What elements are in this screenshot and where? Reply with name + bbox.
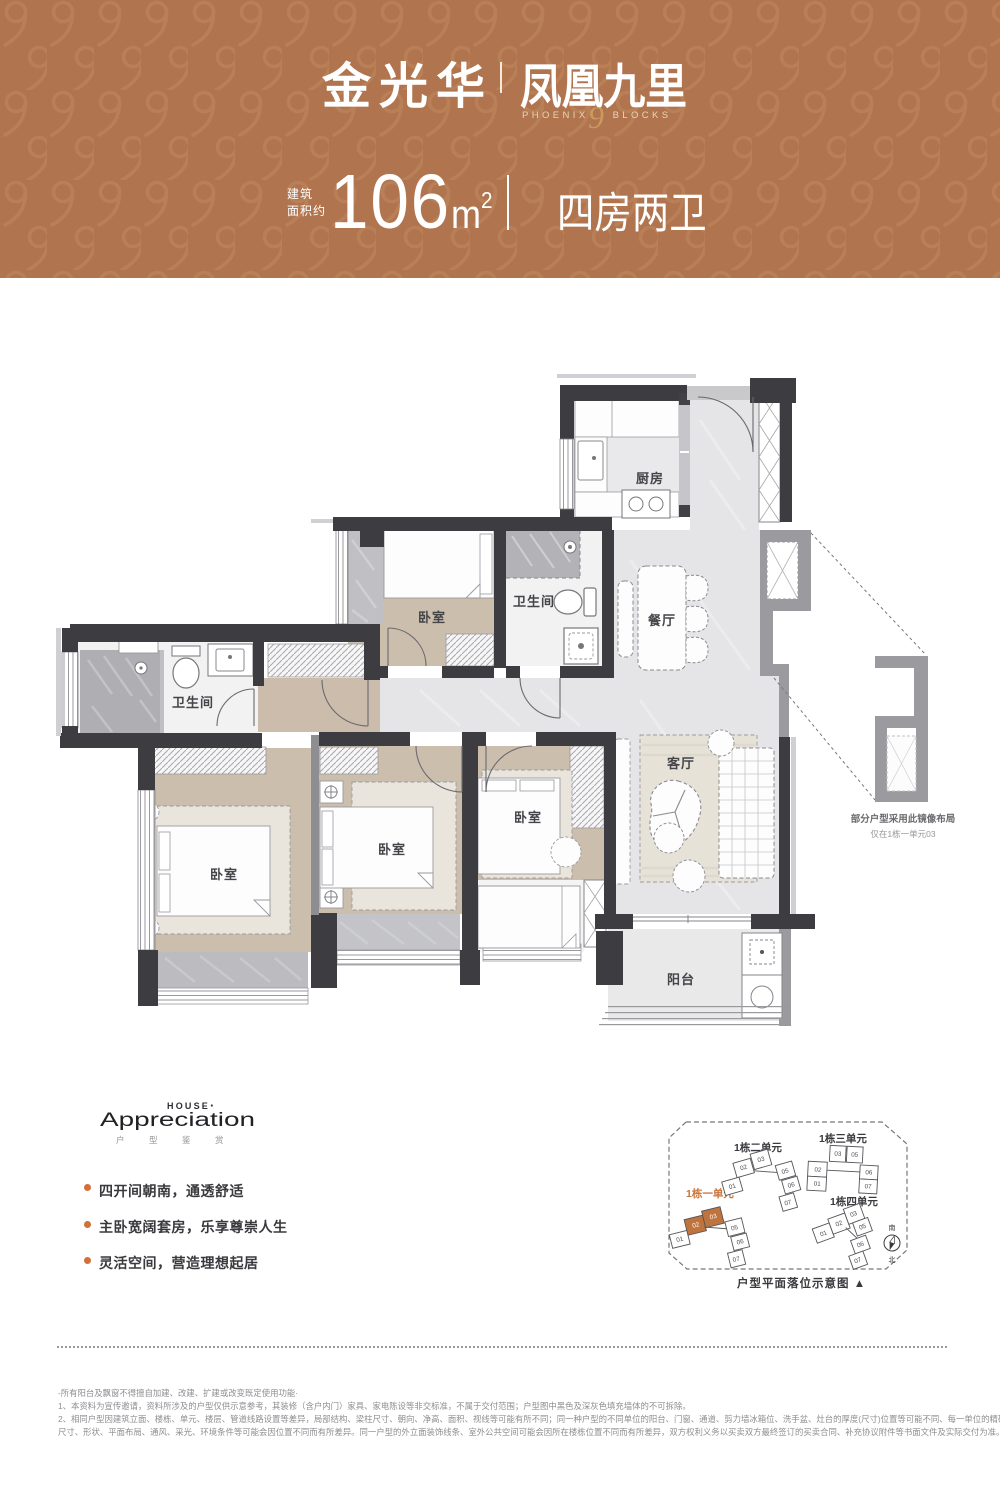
svg-text:餐厅: 餐厅 [647,613,676,628]
svg-text:卧室: 卧室 [378,842,406,857]
svg-text:部分户型采用此镜像布局: 部分户型采用此镜像布局 [851,813,956,825]
svg-text:07: 07 [864,1183,872,1190]
svg-text:南: 南 [889,1223,896,1232]
svg-text:客厅: 客厅 [667,756,695,771]
svg-text:卫生间: 卫生间 [172,695,214,710]
svg-text:仅在1栋一单元03: 仅在1栋一单元03 [870,829,935,839]
svg-text:Appreciation: Appreciation [100,1110,255,1131]
svg-text:03: 03 [834,1151,842,1158]
svg-text:卫生间: 卫生间 [513,594,555,609]
svg-text:06: 06 [865,1169,873,1176]
svg-text:卧室: 卧室 [514,810,542,825]
svg-text:02: 02 [814,1167,822,1174]
svg-text:北: 北 [889,1256,896,1264]
svg-text:1栋三单元: 1栋三单元 [819,1132,867,1145]
svg-text:户型平面落位示意图 ▲: 户型平面落位示意图 ▲ [737,1276,866,1290]
svg-text:卧室: 卧室 [210,867,238,882]
svg-text:阳台: 阳台 [667,972,695,987]
svg-text:卧室: 卧室 [418,610,446,625]
svg-text:厨房: 厨房 [636,471,664,486]
svg-text:01: 01 [813,1181,821,1188]
svg-text:05: 05 [851,1151,859,1158]
